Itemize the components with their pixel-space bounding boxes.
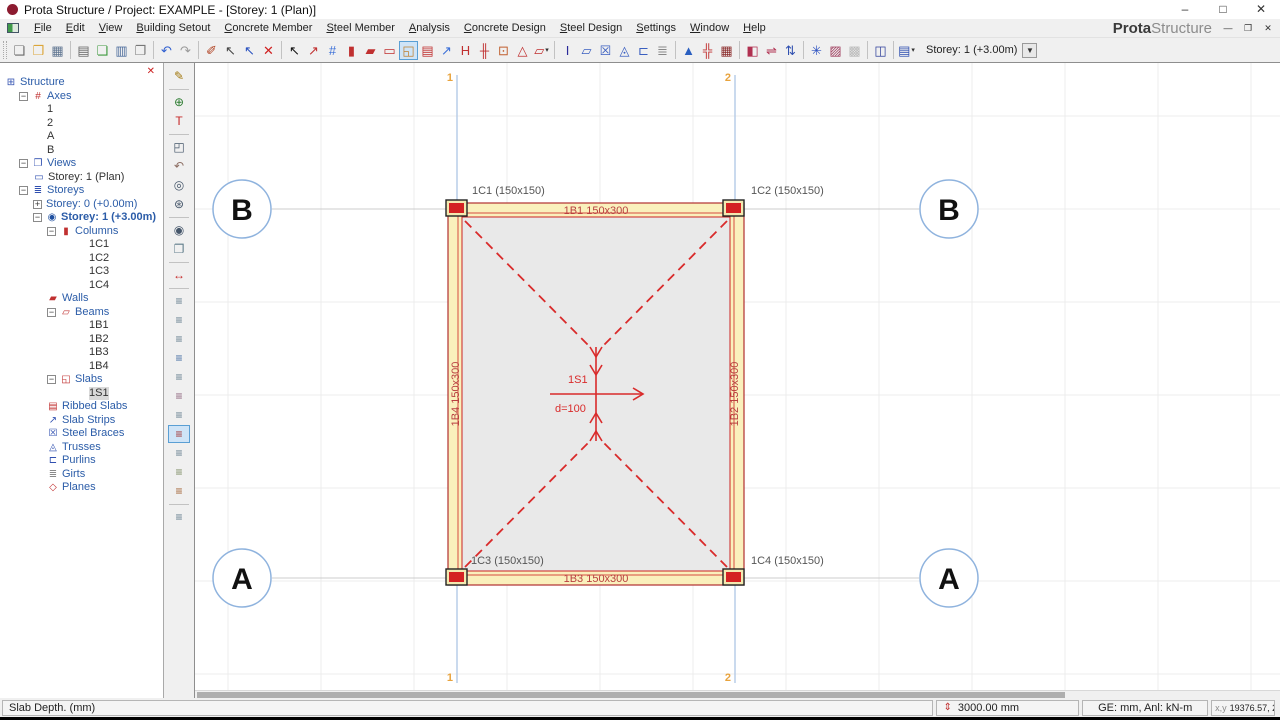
beam-label-1B3: 1B3 150x300 [564,573,629,585]
tree-item-1s1[interactable]: 1S1 [0,387,163,401]
visibility-strips-toggle[interactable]: ≡ [168,387,190,405]
column-1C4[interactable] [723,569,744,585]
menu-help[interactable]: Help [736,20,773,36]
select-filter-tool[interactable]: ↖ [240,41,259,60]
text-dimension-tool[interactable]: T [168,112,190,130]
slab-strip-tool[interactable]: ↗ [437,41,456,60]
polyline-tool[interactable]: ▱▾ [532,41,551,60]
tree-label: Steel Braces [62,427,124,441]
tree-item-1c4[interactable]: 1C4 [0,279,163,293]
ribbed-slab-tool[interactable]: ▤ [418,41,437,60]
zoom-window-tool[interactable]: ◰ [168,138,190,156]
toolbar-separator [893,41,894,59]
grid-bubble-A-right[interactable]: A [920,549,978,607]
toolbar-separator [867,41,868,59]
planes-icon: ◇ [47,481,59,495]
tree-label: Structure [20,76,65,90]
tree-label: Storey: 1 (+3.00m) [61,211,156,225]
page-copy-button[interactable]: ❐ [131,41,150,60]
mdi-restore-button[interactable]: ❐ [1240,23,1256,34]
redo-button[interactable]: ↷ [176,41,195,60]
menu-bar: FileEditViewBuilding SetoutConcrete Memb… [0,19,1280,38]
storey-tool-button[interactable]: ▤▾ [897,41,916,60]
collapse-icon[interactable]: − [33,213,42,222]
zoom-extents-tool[interactable]: ◎ [168,176,190,194]
menu-edit[interactable]: Edit [59,20,92,36]
minimize-button[interactable]: – [1166,0,1204,19]
visibility-walls-toggle[interactable]: ≡ [168,311,190,329]
mdi-minimize-button[interactable]: — [1220,23,1236,33]
girts-icon: ≣ [47,468,59,482]
tree-label: Trusses [62,441,101,455]
purlin-tool[interactable]: ⊏ [634,41,653,60]
tree-label: 1C2 [89,252,109,266]
current-storey-icon: ◉ [46,211,58,225]
member-line-tool[interactable]: ↗ [304,41,323,60]
app-window: Prota Structure / Project: EXAMPLE - [St… [0,0,1280,720]
slab-label-1S1: 1S1 [568,374,588,386]
toolbar-separator [169,262,189,263]
collapse-icon[interactable]: − [47,308,56,317]
tree-label: 1B3 [89,346,109,360]
view-options-tool[interactable]: ◉ [168,221,190,239]
toolbar-separator [739,41,740,59]
tree-item-1[interactable]: 1 [0,103,163,117]
tree-item-columns[interactable]: −▮Columns [0,225,163,239]
tree-label: Slab Strips [62,414,115,428]
analysis-grid-tool[interactable]: ╬ [698,41,717,60]
app-icon [7,4,18,15]
tree-label: 1B2 [89,333,109,347]
axes-icon: # [32,90,44,104]
toolbar-separator [281,41,282,59]
tree-label: Planes [62,481,96,495]
open-folder-button[interactable]: ❒ [29,41,48,60]
visibility-purlins-toggle[interactable]: ≡ [168,463,190,481]
visibility-ribbed-toggle[interactable]: ≡ [168,368,190,386]
tree-label: Storey: 0 (+0.00m) [46,198,137,212]
tree-item-2[interactable]: 2 [0,117,163,131]
steel-braces-icon: ☒ [47,427,59,441]
visibility-loads-toggle[interactable]: ≡ [168,406,190,424]
tree-item-1c3[interactable]: 1C3 [0,265,163,279]
horizontal-scrollbar[interactable] [195,690,1280,698]
tree-item-beams[interactable]: −▱Beams [0,306,163,320]
copy-elements-tool[interactable]: ❐ [168,240,190,258]
tree-label: Storeys [47,184,84,198]
building-analysis-tool[interactable]: ▦ [717,41,736,60]
svg-text:A: A [231,563,253,596]
new-file-button[interactable]: ❏ [10,41,29,60]
menu-items: FileEditViewBuilding SetoutConcrete Memb… [27,20,773,36]
grid-bubble-A-left[interactable]: A [213,549,271,607]
visibility-trusses-toggle[interactable]: ≡ [168,444,190,462]
menu-view[interactable]: View [92,20,130,36]
menu-settings[interactable]: Settings [629,20,683,36]
tree-label: Ribbed Slabs [62,400,127,414]
tree-item-1b1[interactable]: 1B1 [0,319,163,333]
toolbar-separator [169,504,189,505]
toolbar-separator [169,217,189,218]
tree-item-trusses[interactable]: ◬Trusses [0,441,163,455]
tree-item-axes[interactable]: −#Axes [0,90,163,104]
undo-button[interactable]: ↶ [157,41,176,60]
trusses-icon: ◬ [47,441,59,455]
units-cell[interactable]: GE: mm, Anl: kN-m [1082,700,1208,716]
menu-steel-member[interactable]: Steel Member [319,20,401,36]
girt-tool[interactable]: ≣ [653,41,672,60]
tree-label: Girts [62,468,85,482]
tree-item-slab-strips[interactable]: ↗Slab Strips [0,414,163,428]
svg-text:B: B [938,194,960,227]
coordinates-cell: x,y 19376.57, 20204.50 [1211,700,1275,716]
tree-label: Storey: 1 (Plan) [48,171,124,185]
toolbar-separator [169,134,189,135]
collapse-icon[interactable]: − [47,375,56,384]
visibility-columns-toggle[interactable]: ≡ [168,292,190,310]
zoom-in-tool[interactable]: ⊛ [168,195,190,213]
dropdown-caret-icon[interactable]: ▾ [545,41,549,60]
tree-label: 1C1 [89,238,109,252]
structure-tree-panel: ✕ ⊞Structure−#Axes12AB−❐Views▭Storey: 1 … [0,63,164,698]
zoom-previous-tool[interactable]: ↶ [168,157,190,175]
storey-height-cell[interactable]: ⇕ 3000.00 mm [936,700,1079,716]
drawing-area[interactable]: 1 2 1 2 B B A A [195,63,1280,698]
menu-steel-design[interactable]: Steel Design [553,20,629,36]
menu-window[interactable]: Window [683,20,736,36]
table-view-button[interactable]: ◫ [871,41,890,60]
collapse-icon[interactable]: − [19,92,28,101]
toolbar-separator [169,288,189,289]
tree-label: 1S1 [89,387,109,401]
toolbar-separator [169,89,189,90]
beam-label-1B4: 1B4 150x300 [450,362,462,427]
axis-label-1-bottom: 1 [447,672,453,684]
tree-item-steel-braces[interactable]: ☒Steel Braces [0,427,163,441]
tree-label: Slabs [75,373,103,387]
window-title: Prota Structure / Project: EXAMPLE - [St… [24,3,316,17]
steel-column-tool[interactable]: ╫ [475,41,494,60]
views-icon: ❐ [32,157,44,171]
tree-item-b[interactable]: B [0,144,163,158]
structure-tree: ⊞Structure−#Axes12AB−❐Views▭Storey: 1 (P… [0,76,163,495]
collapse-icon[interactable]: − [19,159,28,168]
column-1C2[interactable] [723,200,744,216]
shear-panel-tool[interactable]: ▱ [577,41,596,60]
tree-label: Views [47,157,76,171]
axis-label-2-top: 2 [725,72,731,84]
purlins-icon: ⊏ [47,454,59,468]
column-label-1C4: 1C4 (150x150) [751,555,824,567]
tree-item-planes[interactable]: ◇Planes [0,481,163,495]
select-pointer-tool[interactable]: ↖ [285,41,304,60]
menu-concrete-design[interactable]: Concrete Design [457,20,553,36]
columns-icon: ▮ [60,225,72,239]
tree-item-girts[interactable]: ≣Girts [0,468,163,482]
detail-view-button[interactable]: ▨ [826,41,845,60]
column-1C3[interactable] [446,569,467,585]
axis-label-2-bottom: 2 [725,672,731,684]
tree-item-storey-1-3-00m[interactable]: −◉Storey: 1 (+3.00m) [0,211,163,225]
toolbar-separator [803,41,804,59]
tree-item-a[interactable]: A [0,130,163,144]
tree-label: 1B1 [89,319,109,333]
report-table-button[interactable]: ▥ [112,41,131,60]
edit-member-tool[interactable]: ✐ [202,41,221,60]
beam-label-1B2: 1B2 150x300 [729,362,741,427]
axes-tool[interactable]: # [323,41,342,60]
toolbar-separator [153,41,154,59]
tree-label: 1B4 [89,360,109,374]
freeze-view-button[interactable]: ✳ [807,41,826,60]
structure-icon: ⊞ [5,76,17,90]
close-button[interactable]: ✕ [1242,0,1280,19]
plan-view-svg: 1 2 1 2 B B A A [195,63,1280,690]
menu-file[interactable]: File [27,20,59,36]
beam-update-tool[interactable]: ⇌ [762,41,781,60]
tree-item-structure[interactable]: ⊞Structure [0,76,163,90]
dropdown-caret-icon[interactable]: ▾ [911,41,915,60]
walls-icon: ▰ [47,292,59,306]
storey-selector[interactable]: Storey: 1 (+3.00m)▼ [926,43,1037,58]
menu-concrete-member[interactable]: Concrete Member [217,20,319,36]
steel-beam-tool[interactable]: H [456,41,475,60]
tree-label: Beams [75,306,109,320]
visibility-locks-toggle[interactable]: ≡ [168,508,190,526]
visibility-braces-toggle[interactable]: ≡ [168,425,190,443]
elevations-tool[interactable]: ▲ [679,41,698,60]
collapse-icon[interactable]: − [19,186,28,195]
visibility-beams-toggle[interactable]: ≡ [168,330,190,348]
tree-item-1b3[interactable]: 1B3 [0,346,163,360]
dimension-tool[interactable]: ↔ [168,266,190,284]
tree-label: 2 [47,117,53,131]
visibility-slabs-toggle[interactable]: ≡ [168,349,190,367]
status-hint: Slab Depth. (mm) [2,700,933,716]
tree-item-storey-0-0-00m[interactable]: +Storey: 0 (+0.00m) [0,198,163,212]
storey-height-icon: ⇕ [943,701,951,715]
tree-item-1c2[interactable]: 1C2 [0,252,163,266]
plane-tool[interactable]: △ [513,41,532,60]
svg-text:B: B [231,194,253,227]
slab-strips-icon: ↗ [47,414,59,428]
toolbar-separator [70,41,71,59]
column-label-1C2: 1C2 (150x150) [751,185,824,197]
storey-height-value: 3000.00 mm [958,701,1019,715]
column-label-1C3: 1C3 (150x150) [471,555,544,567]
i-section-tool[interactable]: I [558,41,577,60]
beam-tool[interactable]: ▭ [380,41,399,60]
svg-text:A: A [938,563,960,596]
deselect-tool[interactable]: ↖ [221,41,240,60]
ribbed-slabs-icon: ▤ [47,400,59,414]
tree-item-views[interactable]: −❐Views [0,157,163,171]
coordinates-prefix: x,y [1215,701,1227,715]
save-button[interactable]: ▦ [48,41,67,60]
menu-building-setout[interactable]: Building Setout [129,20,217,36]
column-update-tool[interactable]: ⇅ [781,41,800,60]
tree-item-purlins[interactable]: ⊏Purlins [0,454,163,468]
export-report-button[interactable]: ❏ [93,41,112,60]
side-toolbar: ✎⊕T◰↶◎⊛◉❐↔≡≡≡≡≡≡≡≡≡≡≡≡ [164,63,195,698]
slab-tool[interactable]: ◱ [399,41,418,60]
snap-target-tool[interactable]: ⊕ [168,93,190,111]
tree-item-slabs[interactable]: −◱Slabs [0,373,163,387]
expand-icon[interactable]: + [33,200,42,209]
tree-label: Axes [47,90,71,104]
slab-depth-label: d=100 [555,403,586,415]
tree-label: B [47,144,54,158]
status-bar: Slab Depth. (mm) ⇕ 3000.00 mm GE: mm, An… [0,698,1280,717]
sketch-tool[interactable]: ✎ [168,67,190,85]
visibility-girts-toggle[interactable]: ≡ [168,482,190,500]
tree-item-1c1[interactable]: 1C1 [0,238,163,252]
tree-item-walls[interactable]: ▰Walls [0,292,163,306]
maximize-button[interactable]: □ [1204,0,1242,19]
display-options-button[interactable]: ◧ [743,41,762,60]
menu-analysis[interactable]: Analysis [402,20,457,36]
tree-item-ribbed-slabs[interactable]: ▤Ribbed Slabs [0,400,163,414]
toolbar-separator [675,41,676,59]
toolbar-separator [198,41,199,59]
tree-label: A [47,130,54,144]
axis-label-1-top: 1 [447,72,453,84]
protastructure-logo: ProtaStructure [1113,20,1212,37]
storey-dropdown-button[interactable]: ▼ [1022,43,1037,58]
tree-label: 1C3 [89,265,109,279]
tree-label: Walls [62,292,88,306]
toolbar-grip[interactable] [3,41,7,59]
tree-item-1b2[interactable]: 1B2 [0,333,163,347]
brace-tool[interactable]: ☒ [596,41,615,60]
column-1C1[interactable] [446,200,467,216]
wall-tool[interactable]: ▰ [361,41,380,60]
mdi-close-button[interactable]: ✕ [1260,23,1276,34]
storeys-icon: ≣ [32,184,44,198]
print-button[interactable]: ▤ [74,41,93,60]
grid-bubble-B-left[interactable]: B [213,180,271,238]
column-label-1C1: 1C1 (150x150) [472,185,545,197]
grid-bubble-B-right[interactable]: B [920,180,978,238]
tree-label: Columns [75,225,118,239]
tree-item-1b4[interactable]: 1B4 [0,360,163,374]
grid-off-button[interactable]: ▩ [845,41,864,60]
node-move-tool[interactable]: ⊡ [494,41,513,60]
beam-label-1B1: 1B1 150x300 [564,205,629,217]
coordinates-value: 19376.57, 20204.50 [1230,701,1275,715]
title-bar: Prota Structure / Project: EXAMPLE - [St… [0,0,1280,19]
truss-tool[interactable]: ◬ [615,41,634,60]
mdi-child-icon[interactable] [7,23,19,33]
tree-label: 1C4 [89,279,109,293]
toolbar-separator [554,41,555,59]
main-toolbar: ❏❒▦▤❏▥❐↶↷✐↖↖✕↖↗#▮▰▭◱▤↗H╫⊡△▱▾I▱☒◬⊏≣▲╬▦◧⇌⇅… [0,38,1280,63]
storey-selector-label: Storey: 1 (+3.00m) [926,44,1017,56]
delete-button[interactable]: ✕ [259,41,278,60]
beams-icon: ▱ [60,306,72,320]
column-tool[interactable]: ▮ [342,41,361,60]
tree-item-storeys[interactable]: −≣Storeys [0,184,163,198]
view-plan-icon: ▭ [33,171,45,185]
collapse-icon[interactable]: − [47,227,56,236]
slabs-icon: ◱ [60,373,72,387]
tree-item-storey-1-plan[interactable]: ▭Storey: 1 (Plan) [0,171,163,185]
tree-label: 1 [47,103,53,117]
tree-label: Purlins [62,454,96,468]
